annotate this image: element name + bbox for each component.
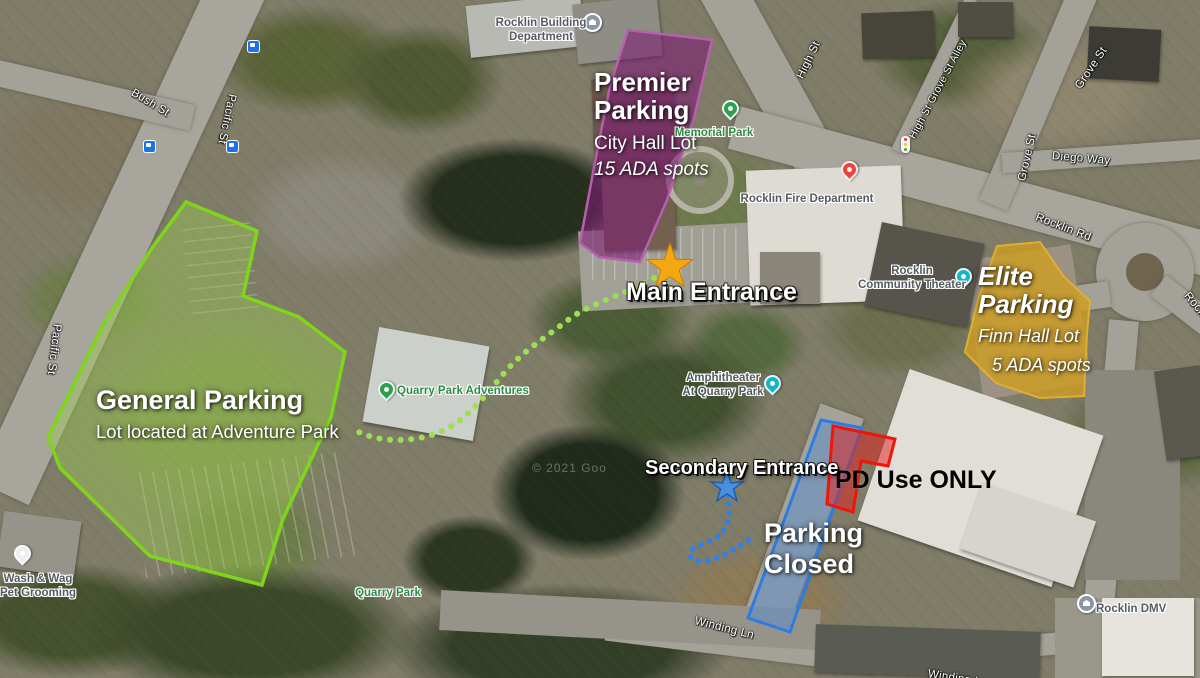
elite-parking-title: Elite Parking (978, 262, 1108, 318)
house-1 (861, 11, 935, 59)
dmv-pin-icon (1077, 594, 1096, 613)
premier-parking-title: Premier Parking (594, 68, 734, 124)
premier-parking-subtitle: City Hall Lot (594, 133, 734, 155)
elite-parking-label: Elite Parking Finn Hall Lot 5 ADA spots (978, 262, 1108, 376)
general-parking-title: General Parking (96, 386, 396, 415)
parking-closed-title: Parking Closed (764, 518, 884, 580)
premier-parking-label: Premier Parking City Hall Lot 15 ADA spo… (594, 68, 734, 181)
poi-label-quarry-park-adventures: Quarry Park Adventures (397, 384, 529, 398)
general-lot-stripes (135, 451, 355, 577)
poi-label-community-theater: Rocklin Community Theater (858, 264, 966, 293)
main-entrance-label: Main Entrance (626, 278, 797, 307)
poi-label-amphitheater: Amphitheater At Quarry Park (682, 371, 763, 400)
parking-map: Bush St Pacific St Pacific St High St Hi… (0, 0, 1200, 678)
parking-closed-label: Parking Closed (764, 518, 884, 580)
pd-use-only-label: PD Use ONLY (835, 466, 997, 495)
poi-label-dmv: Rocklin DMV (1096, 602, 1166, 616)
house-3 (958, 2, 1013, 37)
poi-label-fire-dept: Rocklin Fire Department (741, 192, 874, 206)
traffic-light-icon (901, 136, 910, 153)
bus-stop-icon (226, 140, 239, 153)
map-attribution: © 2021 Goo (532, 461, 607, 475)
wash-wag-building (0, 511, 82, 577)
poi-label-quarry-park: Quarry Park (355, 586, 421, 600)
elite-parking-subtitle: Finn Hall Lot (978, 326, 1108, 347)
premier-parking-detail: 15 ADA spots (594, 159, 734, 181)
general-parking-subtitle: Lot located at Adventure Park (96, 421, 396, 443)
elite-parking-detail: 5 ADA spots (992, 355, 1108, 376)
city-hall-building-south (602, 174, 677, 251)
general-parking-label: General Parking Lot located at Adventure… (96, 386, 396, 443)
bus-stop-icon (247, 40, 260, 53)
general-lot-stripes-upper (181, 213, 259, 315)
bus-stop-icon (143, 140, 156, 153)
secondary-entrance-label: Secondary Entrance (645, 457, 838, 480)
poi-label-building-dept: Rocklin Building Department (496, 16, 587, 45)
poi-label-wash-wag: Wash & Wag Pet Grooming (0, 572, 76, 601)
